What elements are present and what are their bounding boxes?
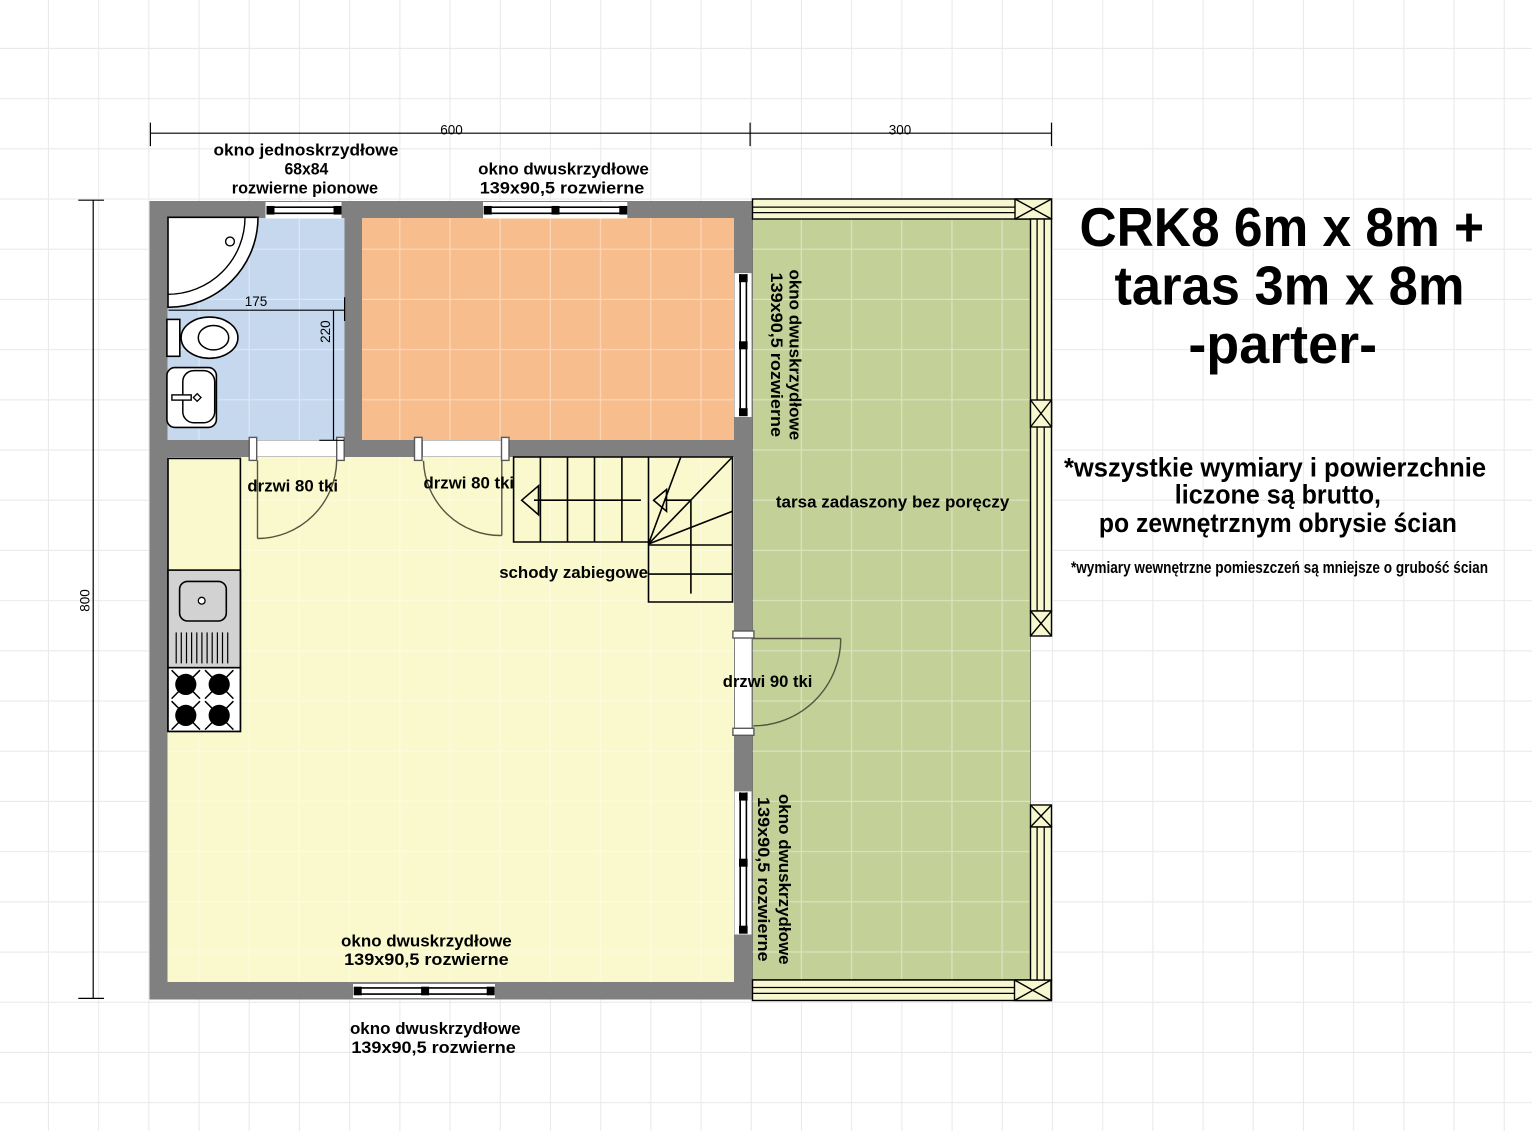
svg-text:300: 300 [889,123,912,138]
svg-text:tarsa zadaszony bez poręczy: tarsa zadaszony bez poręczy [776,492,1010,511]
svg-text:okno dwuskrzydłowe: okno dwuskrzydłowe [775,794,794,965]
svg-text:800: 800 [77,589,92,612]
svg-text:CRK8 6m x 8m +: CRK8 6m x 8m + [1080,196,1485,258]
svg-text:taras 3m x 8m: taras 3m x 8m [1114,255,1464,317]
svg-text:*wymiary wewnętrzne pomieszcze: *wymiary wewnętrzne pomieszczeń są mniej… [1071,559,1488,577]
svg-text:68x84: 68x84 [284,160,328,179]
svg-text:liczone są brutto,: liczone są brutto, [1175,480,1381,510]
svg-text:220: 220 [318,320,333,343]
svg-text:okno dwuskrzydłowe: okno dwuskrzydłowe [341,932,512,951]
svg-text:okno dwuskrzydłowe: okno dwuskrzydłowe [478,159,649,178]
svg-text:-parter-: -parter- [1188,313,1377,375]
svg-text:139x90,5 rozwierne: 139x90,5 rozwierne [480,178,645,197]
svg-text:po zewnętrznym obrysie ścian: po zewnętrznym obrysie ścian [1099,508,1457,538]
svg-text:okno dwuskrzydłowe: okno dwuskrzydłowe [350,1019,521,1038]
svg-text:okno jednoskrzydłowe: okno jednoskrzydłowe [214,140,399,159]
svg-text:*wszystkie wymiary i powierzch: *wszystkie wymiary i powierzchnie [1064,452,1486,482]
svg-text:139x90,5 rozwierne: 139x90,5 rozwierne [767,273,786,438]
svg-text:139x90,5 rozwierne: 139x90,5 rozwierne [351,1038,516,1057]
svg-text:okno dwuskrzydłowe: okno dwuskrzydłowe [786,269,805,440]
svg-text:drzwi 80 tki: drzwi 80 tki [424,474,515,493]
svg-text:drzwi 80 tki: drzwi 80 tki [247,477,338,496]
svg-text:139x90,5 rozwierne: 139x90,5 rozwierne [344,950,509,969]
svg-text:600: 600 [440,123,463,138]
svg-text:rozwierne pionowe: rozwierne pionowe [232,179,378,198]
svg-text:139x90,5 rozwierne: 139x90,5 rozwierne [754,797,773,962]
svg-text:drzwi 90 tki: drzwi 90 tki [723,672,813,691]
svg-text:schody zabiegowe: schody zabiegowe [499,563,648,582]
svg-text:175: 175 [245,294,268,309]
